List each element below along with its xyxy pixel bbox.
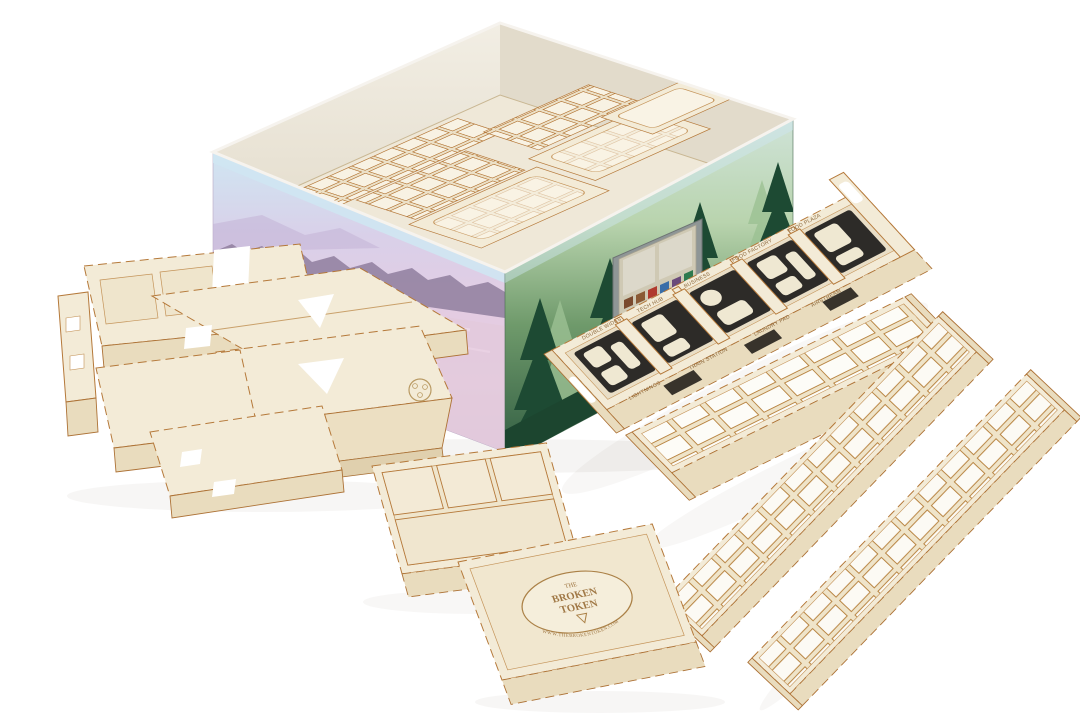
- product-photo: DOUBLE WIDES TECH HUB BUSINESS FOOD FACT…: [0, 0, 1080, 720]
- side-panel-left: [58, 292, 96, 402]
- notch-cutout: [184, 325, 212, 349]
